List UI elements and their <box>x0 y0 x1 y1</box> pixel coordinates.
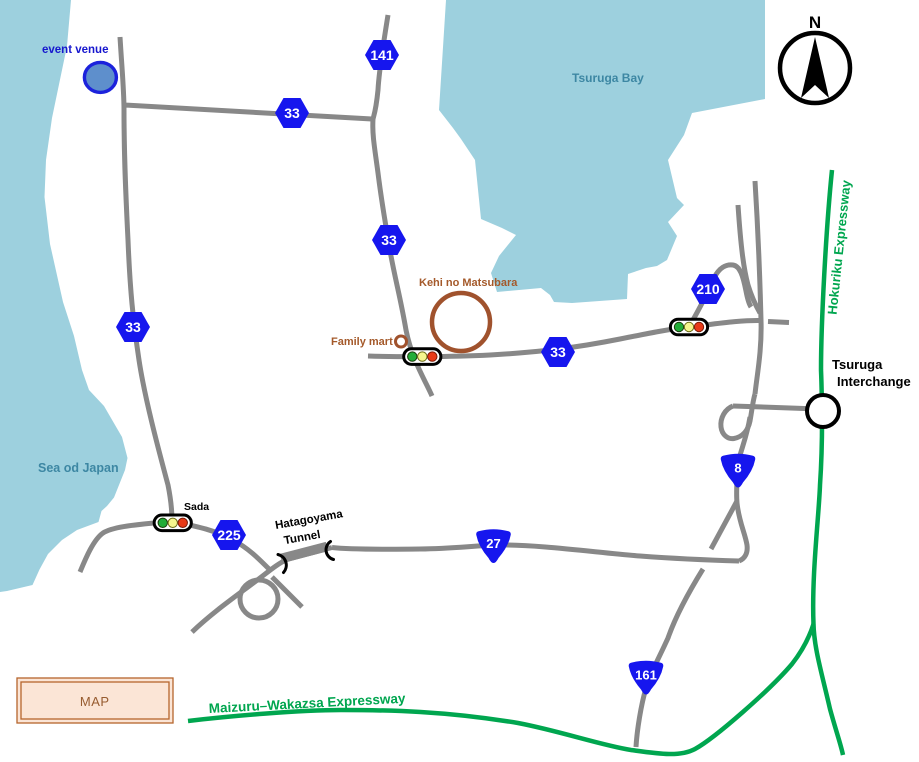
svg-text:Interchange: Interchange <box>837 374 911 389</box>
svg-text:Family mart: Family mart <box>331 336 393 348</box>
svg-text:161: 161 <box>635 668 657 683</box>
svg-text:Kehi no Matsubara: Kehi no Matsubara <box>419 277 518 289</box>
svg-text:Tsuruga: Tsuruga <box>832 357 883 372</box>
svg-text:Sada: Sada <box>184 501 209 513</box>
svg-text:33: 33 <box>125 319 141 335</box>
svg-text:141: 141 <box>370 47 394 63</box>
svg-text:225: 225 <box>217 527 241 543</box>
svg-text:Hatagoyama: Hatagoyama <box>274 508 344 532</box>
svg-text:33: 33 <box>284 105 300 121</box>
svg-text:Tunnel: Tunnel <box>283 529 321 547</box>
svg-text:27: 27 <box>486 536 500 551</box>
svg-text:N: N <box>809 13 821 32</box>
svg-text:event venue: event venue <box>42 44 108 56</box>
svg-text:33: 33 <box>550 344 566 360</box>
svg-text:MAP: MAP <box>80 694 110 709</box>
svg-text:210: 210 <box>696 281 720 297</box>
svg-text:Tsuruga Bay: Tsuruga Bay <box>572 71 644 85</box>
svg-text:Sea od Japan: Sea od Japan <box>38 461 119 475</box>
svg-text:33: 33 <box>381 232 397 248</box>
svg-text:8: 8 <box>734 461 741 476</box>
